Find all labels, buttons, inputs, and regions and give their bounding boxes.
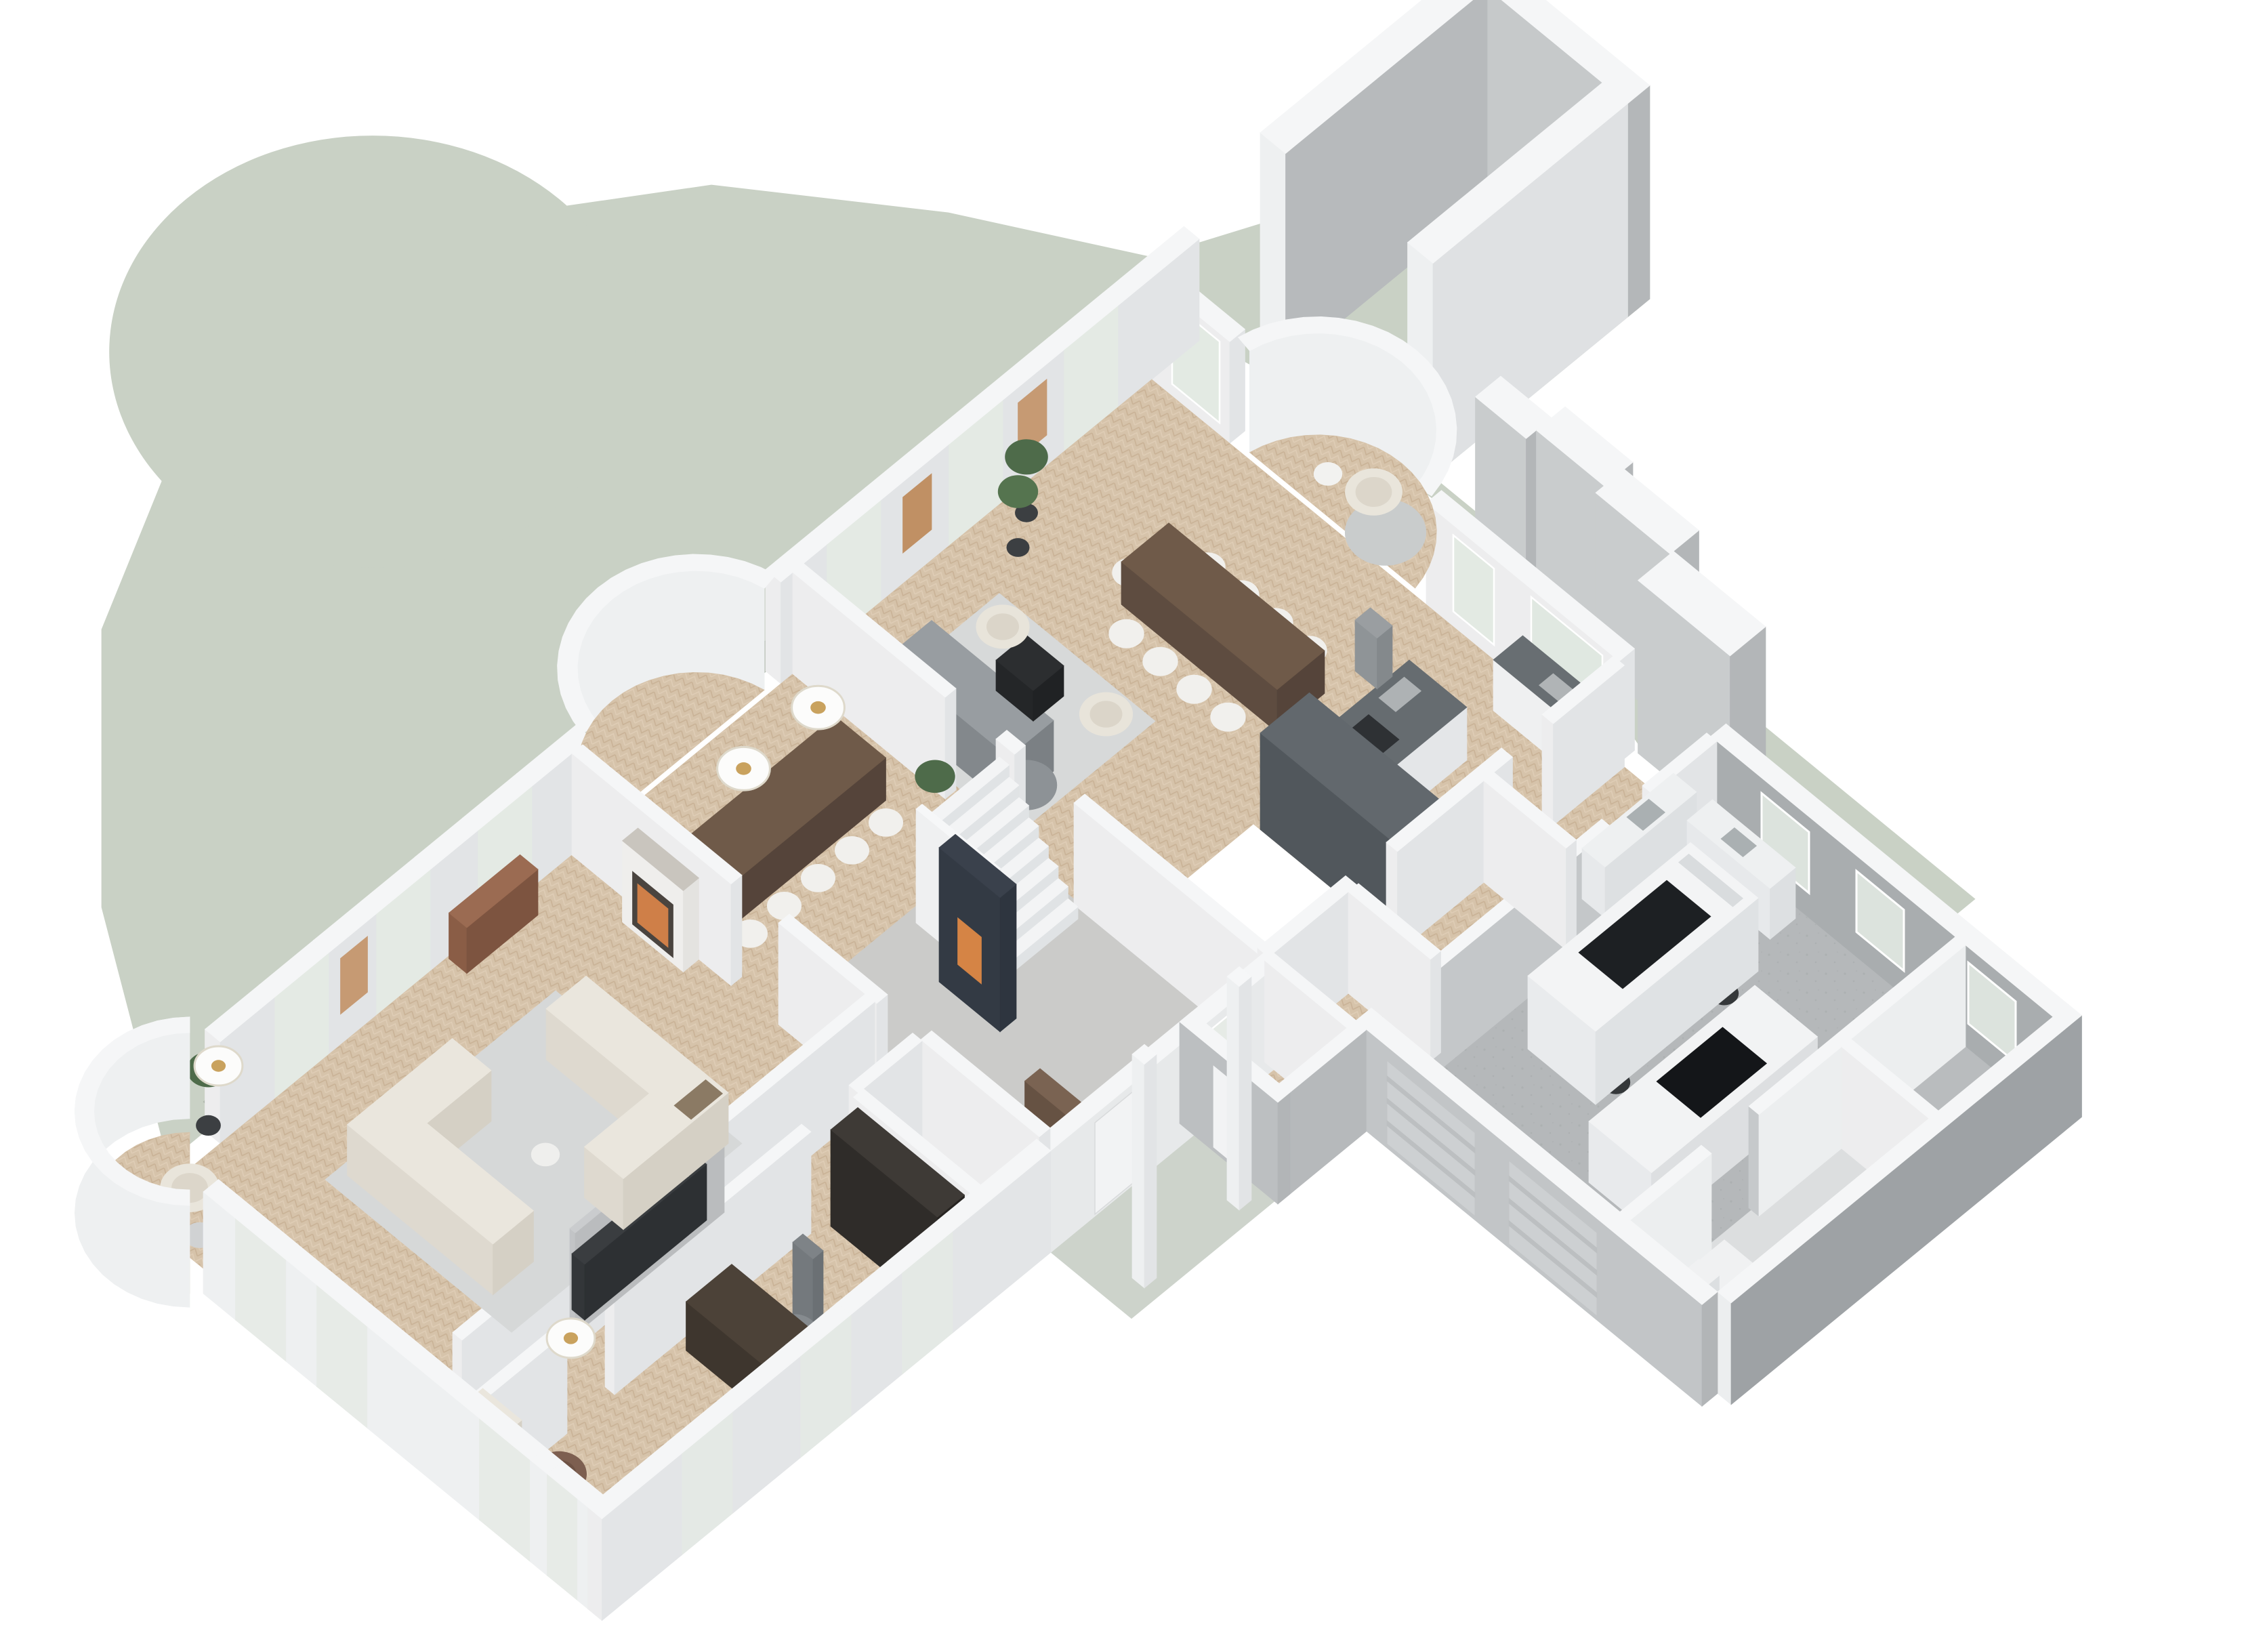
pendant-2-core	[736, 762, 751, 775]
turret-plant-pot	[196, 1115, 221, 1136]
wall-kitchen-east-a-face-sw	[1542, 715, 1554, 826]
plant-1-leaves	[1005, 439, 1048, 474]
page	[0, 0, 2265, 1652]
west-wall-4-face-sw	[766, 570, 781, 684]
porch-column-1-face-sw	[1227, 976, 1239, 1210]
ne-wall-west-face-se	[1230, 329, 1245, 443]
utility-cross-wall-2-face-se	[1431, 951, 1441, 1060]
dining-chairs-east-4	[767, 892, 802, 920]
dining-chairs-east-1	[869, 808, 903, 837]
great-dining-chairs-south-4	[1210, 703, 1245, 732]
fireplace-feature-wall-face-se	[1000, 884, 1016, 1032]
porch-column-1-face-se	[1239, 976, 1251, 1210]
porch-column-2-face-se	[1144, 1054, 1157, 1288]
dining-chairs-east-2	[835, 836, 869, 865]
study-pendant-core	[564, 1332, 578, 1344]
turret-pendant-core	[211, 1060, 226, 1071]
plant-2-leaves	[998, 475, 1038, 508]
garage-sw-wall-face-se	[1702, 1292, 1718, 1407]
wall-living-north-a-face-se	[731, 875, 742, 986]
nook-armchair-seat	[1356, 477, 1392, 507]
pendant-1-core	[810, 701, 826, 714]
garage-east-wall-face-sw	[1718, 1292, 1731, 1405]
great-dining-chairs-south-3	[1176, 675, 1211, 704]
dining-chairs-east-3	[801, 864, 835, 892]
plant-2-pot	[1007, 538, 1030, 557]
porch-wall-face-se	[1278, 1092, 1290, 1204]
candle-tray	[531, 1143, 560, 1167]
armchair-2-seat	[986, 613, 1019, 640]
nook-side-table	[1314, 462, 1342, 486]
floor-plan-3d-view	[0, 0, 2265, 1652]
tv-unit-face-sw	[572, 1254, 585, 1320]
se-wall-4-face-sw	[588, 1507, 602, 1620]
utility-cross-wall-1-face-se	[1566, 840, 1577, 949]
armchair-1-seat	[1090, 701, 1123, 727]
lawn-round-bump	[109, 136, 636, 568]
garden-wall-end-face-se	[1628, 85, 1650, 317]
living-fireplace-face-se	[684, 878, 699, 972]
great-dining-chairs-south-1	[1108, 619, 1144, 648]
garage-wall-east-a-face-sw	[1749, 1107, 1759, 1216]
dining-plant-leaves	[915, 760, 955, 793]
great-dining-chairs-south-2	[1142, 647, 1178, 676]
sw-wall-4-face-sw	[531, 1460, 547, 1576]
porch-column-2-face-sw	[1132, 1054, 1144, 1288]
